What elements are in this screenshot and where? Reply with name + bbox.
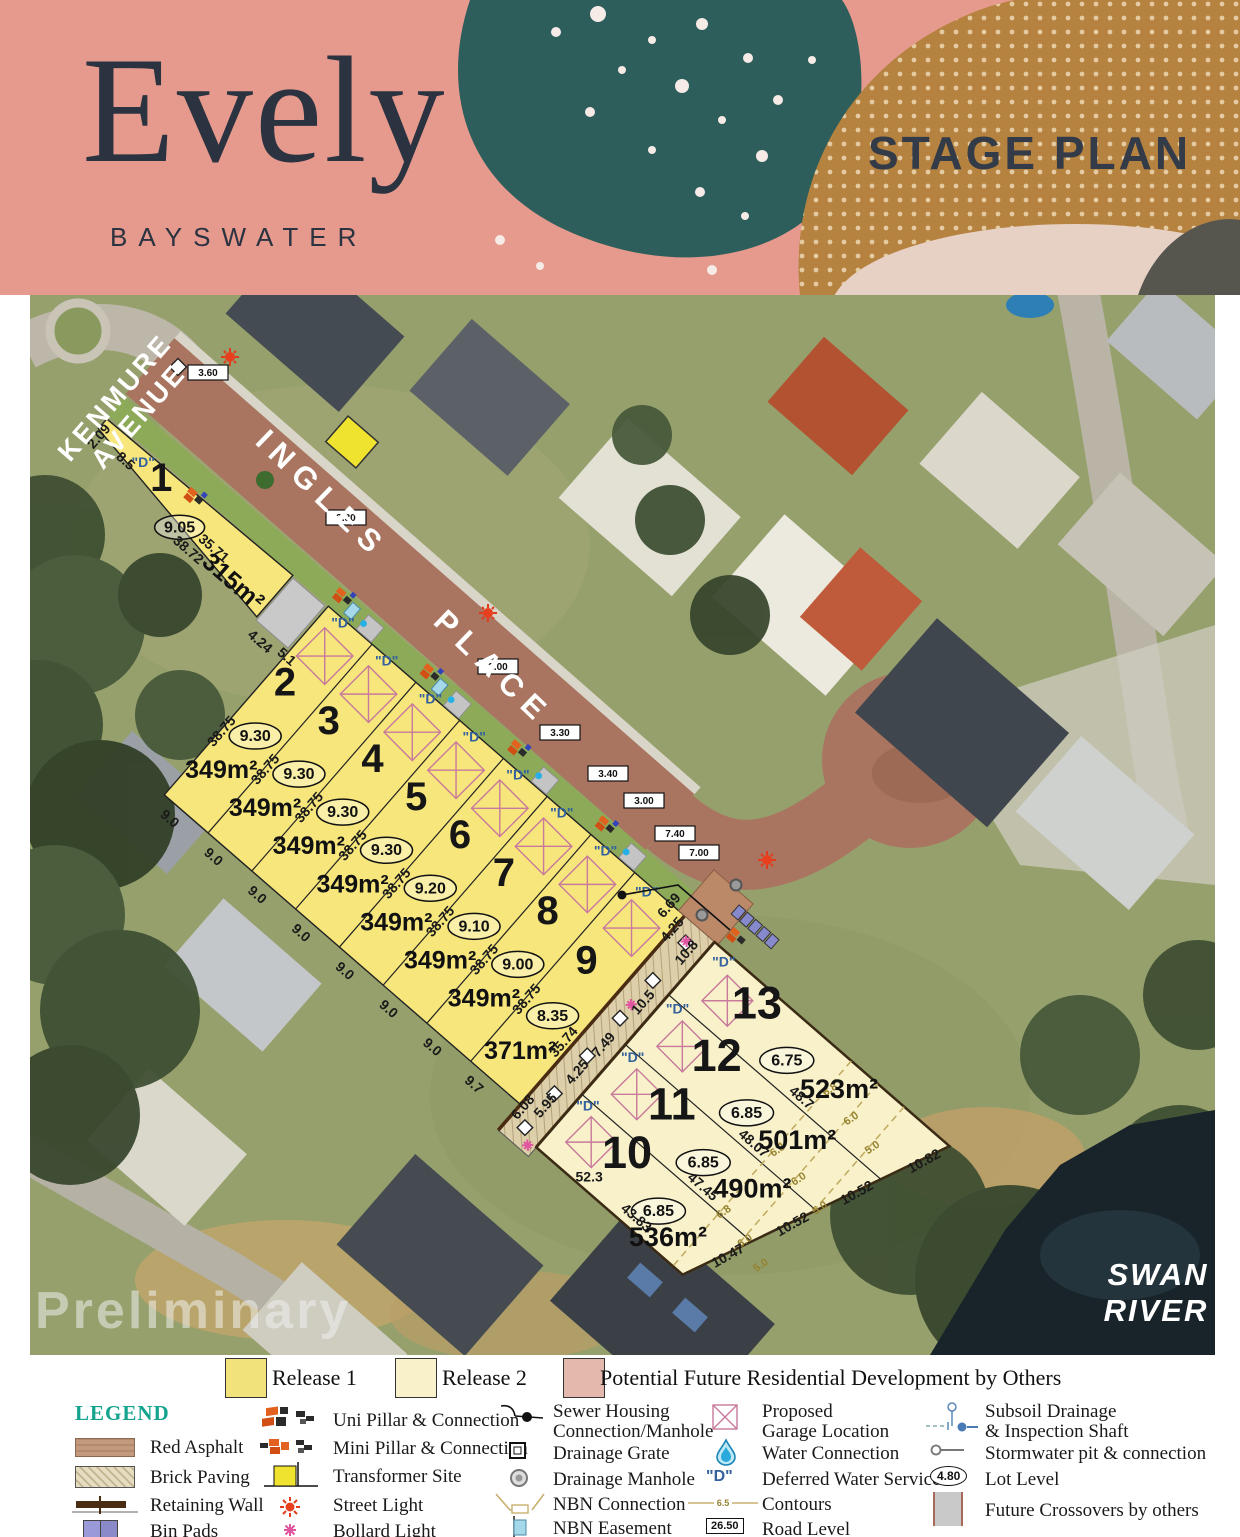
water-connection-label: Water Connection: [762, 1443, 899, 1465]
svg-text:"D": "D": [506, 766, 529, 782]
svg-text:349m²: 349m²: [273, 832, 345, 860]
release1-swatch: [225, 1358, 267, 1398]
svg-text:10: 10: [602, 1127, 652, 1178]
uni-pillar-icon: [258, 1405, 324, 1436]
transformer-site-icon: [262, 1460, 322, 1495]
svg-text:"D": "D": [712, 953, 735, 969]
release1-label: Release 1: [272, 1365, 357, 1391]
release3-swatch: [563, 1358, 605, 1398]
svg-text:"D": "D": [594, 843, 617, 859]
river-label: SWAN RIVER: [1104, 1257, 1209, 1328]
bin-pads-icon: [83, 1520, 118, 1537]
retaining-wall-icon: [68, 1494, 142, 1521]
svg-text:"D": "D": [666, 1001, 689, 1017]
subsoil-drainage-icon: [922, 1400, 982, 1441]
bollard-light-label: Bollard Light: [333, 1521, 436, 1537]
svg-text:7: 7: [493, 851, 515, 895]
svg-text:1: 1: [150, 456, 172, 500]
deferred-water-icon: "D": [706, 1468, 733, 1486]
red-asphalt-label: Red Asphalt: [150, 1437, 243, 1459]
svg-text:12: 12: [692, 1030, 742, 1081]
page-title: STAGE PLAN: [868, 126, 1191, 180]
svg-text:371m²: 371m²: [484, 1037, 556, 1065]
roundabout-island: [50, 303, 106, 359]
bin-pads-label: Bin Pads: [150, 1521, 218, 1537]
svg-text:RIVER: RIVER: [1104, 1293, 1209, 1328]
brand-suburb: BAYSWATER: [110, 222, 367, 253]
mini-pillar-label: Mini Pillar & Connection: [333, 1438, 528, 1460]
svg-text:3: 3: [318, 699, 340, 743]
road-level-icon: 26.50: [706, 1518, 744, 1534]
svg-text:349m²: 349m²: [229, 794, 301, 822]
svg-text:490m²: 490m²: [713, 1173, 791, 1203]
svg-text:13: 13: [732, 978, 782, 1029]
svg-text:9: 9: [575, 939, 597, 983]
red-asphalt-swatch: [75, 1438, 135, 1457]
future-crossovers-label: Future Crossovers by others: [985, 1500, 1199, 1522]
brand-logo: Evely: [82, 34, 447, 186]
svg-text:536m²: 536m²: [629, 1222, 707, 1252]
svg-text:6.85: 6.85: [731, 1105, 762, 1122]
svg-text:7.40: 7.40: [665, 829, 685, 840]
garage-location-icon: [710, 1402, 740, 1437]
svg-text:9.30: 9.30: [371, 842, 402, 859]
stormwater-label: Stormwater pit & connection: [985, 1443, 1206, 1465]
svg-text:349m²: 349m²: [185, 756, 257, 784]
svg-text:SWAN: SWAN: [1108, 1257, 1209, 1292]
brick-paving-label: Brick Paving: [150, 1467, 250, 1489]
svg-text:9.30: 9.30: [327, 804, 358, 821]
svg-text:3.40: 3.40: [598, 769, 618, 780]
drainage-grate-label: Drainage Grate: [553, 1443, 670, 1465]
svg-text:6: 6: [449, 813, 471, 857]
header-banner: Evely BAYSWATER STAGE PLAN: [0, 0, 1240, 295]
svg-text:9.00: 9.00: [502, 956, 533, 973]
svg-text:"D": "D": [463, 728, 486, 744]
svg-text:52.3: 52.3: [576, 1168, 603, 1184]
lot-level-icon: 4.80: [930, 1466, 967, 1486]
sewer-icon: [497, 1402, 549, 1433]
svg-text:"D": "D": [331, 614, 354, 630]
svg-text:8: 8: [536, 889, 558, 933]
retaining-wall-label: Retaining Wall: [150, 1495, 264, 1517]
svg-text:"D": "D": [621, 1049, 644, 1065]
svg-text:3.00: 3.00: [634, 796, 654, 807]
svg-text:7.00: 7.00: [689, 848, 709, 859]
shrub: [256, 471, 274, 489]
nbn-connection-label: NBN Connection: [553, 1494, 685, 1516]
svg-text:9.10: 9.10: [458, 918, 489, 935]
street-light-label: Street Light: [333, 1495, 423, 1517]
lot-level-label: Lot Level: [985, 1469, 1059, 1491]
drainage-manhole-label: Drainage Manhole: [553, 1469, 695, 1491]
svg-text:8.35: 8.35: [537, 1008, 568, 1025]
svg-text:11: 11: [648, 1078, 696, 1129]
brick-paving-swatch: [75, 1466, 135, 1488]
release2-label: Release 2: [442, 1365, 527, 1391]
release3-label: Potential Future Residential Development…: [600, 1365, 1061, 1391]
svg-text:2: 2: [274, 661, 296, 705]
nbn-easement-icon: [508, 1514, 532, 1537]
svg-text:6.5: 6.5: [717, 1498, 730, 1508]
future-crossovers-icon: [933, 1492, 963, 1526]
stormwater-icon: [928, 1442, 972, 1463]
svg-text:3.30: 3.30: [550, 728, 570, 739]
road-level-label: Road Level: [762, 1519, 850, 1537]
contours-icon: 6.5: [688, 1496, 758, 1514]
preliminary-watermark: Preliminary: [35, 1281, 351, 1341]
nbn-easement-label: NBN Easement: [553, 1518, 672, 1537]
svg-text:"D": "D": [375, 652, 398, 668]
svg-text:6.75: 6.75: [771, 1052, 802, 1069]
svg-text:"D": "D": [576, 1098, 599, 1114]
drainage-grate-legend-icon: [508, 1441, 528, 1466]
svg-text:9.30: 9.30: [283, 766, 314, 783]
release2-swatch: [395, 1358, 437, 1398]
subsoil-drainage-label: Subsoil Drainage & Inspection Shaft: [985, 1402, 1129, 1442]
garage-location-label: Proposed Garage Location: [762, 1402, 889, 1442]
svg-text:349m²: 349m²: [316, 870, 388, 898]
contours-label: Contours: [762, 1494, 832, 1516]
svg-text:"D": "D": [550, 805, 573, 821]
svg-text:349m²: 349m²: [360, 908, 432, 936]
svg-text:9.30: 9.30: [240, 728, 271, 745]
stage-plan-map: 6.8 6.0 5.0 6.8 6.0 5.0 6.8 6.0 5.0: [30, 295, 1215, 1355]
water-connection-icon: [714, 1438, 738, 1471]
deferred-water-label: Deferred Water Service: [762, 1469, 941, 1491]
stage-plan-page: Evely BAYSWATER STAGE PLAN: [0, 0, 1240, 1537]
svg-text:5: 5: [405, 775, 427, 819]
sewer-label: Sewer Housing Connection/Manhole: [553, 1402, 713, 1442]
svg-text:4: 4: [361, 737, 384, 781]
svg-text:9.20: 9.20: [415, 880, 446, 897]
svg-text:3.60: 3.60: [198, 368, 218, 379]
transformer-label: Transformer Site: [333, 1466, 462, 1488]
legend-title: LEGEND: [75, 1401, 170, 1426]
aerial-plan: 6.8 6.0 5.0 6.8 6.0 5.0 6.8 6.0 5.0: [30, 295, 1215, 1355]
bollard-light-legend-icon: [280, 1520, 300, 1537]
uni-pillar-label: Uni Pillar & Connection: [333, 1410, 519, 1432]
svg-text:349m²: 349m²: [404, 946, 476, 974]
svg-text:"D": "D": [419, 690, 442, 706]
svg-text:6.85: 6.85: [688, 1155, 719, 1172]
